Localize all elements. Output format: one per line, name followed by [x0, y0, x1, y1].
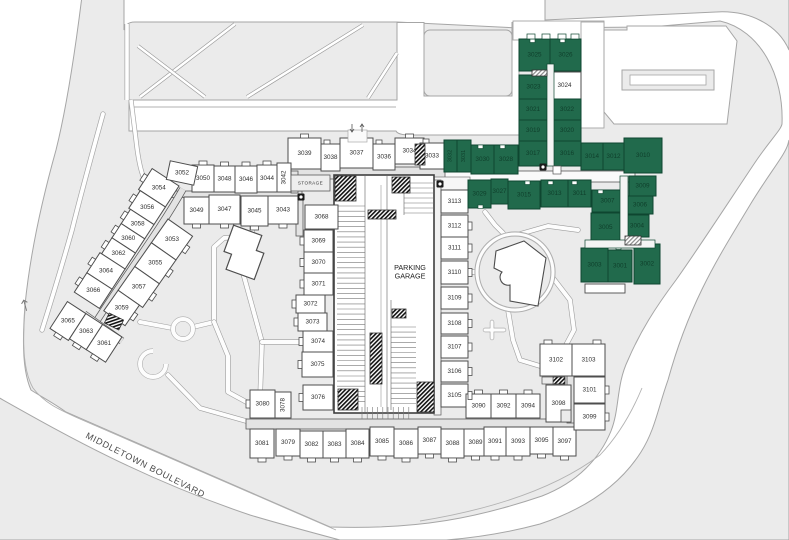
- svg-text:3066: 3066: [86, 287, 101, 294]
- svg-text:3110: 3110: [448, 269, 462, 276]
- svg-text:3109: 3109: [447, 295, 462, 302]
- svg-text:3089: 3089: [468, 439, 483, 446]
- svg-text:3048: 3048: [217, 176, 232, 183]
- svg-text:3056: 3056: [140, 204, 155, 211]
- svg-text:3011: 3011: [573, 190, 587, 197]
- svg-text:3063: 3063: [79, 328, 94, 335]
- svg-text:3070: 3070: [311, 259, 326, 266]
- svg-text:3082: 3082: [304, 441, 319, 448]
- svg-text:3060: 3060: [121, 235, 136, 242]
- svg-text:3030: 3030: [475, 156, 490, 163]
- svg-text:3059: 3059: [115, 305, 130, 312]
- svg-text:3080: 3080: [255, 401, 270, 408]
- svg-text:3108: 3108: [447, 320, 462, 327]
- svg-text:3028: 3028: [499, 156, 514, 163]
- svg-text:3010: 3010: [636, 152, 651, 159]
- svg-text:3007: 3007: [600, 198, 615, 205]
- svg-text:3052: 3052: [175, 170, 190, 177]
- svg-text:3025: 3025: [527, 52, 542, 59]
- svg-text:3095: 3095: [534, 437, 549, 444]
- svg-text:3111: 3111: [448, 245, 462, 252]
- svg-text:3055: 3055: [148, 260, 163, 267]
- svg-text:3074: 3074: [311, 338, 326, 345]
- svg-text:3097: 3097: [557, 438, 572, 445]
- svg-text:3101: 3101: [582, 387, 597, 394]
- svg-text:3049: 3049: [189, 207, 204, 214]
- svg-text:3023: 3023: [526, 84, 541, 91]
- svg-text:3092: 3092: [496, 403, 511, 410]
- svg-text:3094: 3094: [521, 403, 536, 410]
- svg-text:3015: 3015: [517, 192, 532, 199]
- svg-text:3031: 3031: [461, 150, 467, 162]
- svg-text:3014: 3014: [585, 153, 600, 160]
- svg-text:3106: 3106: [447, 368, 462, 375]
- svg-text:3071: 3071: [311, 281, 326, 288]
- svg-text:3081: 3081: [255, 440, 270, 447]
- svg-text:STORAGE: STORAGE: [298, 181, 323, 186]
- svg-text:3107: 3107: [447, 344, 462, 351]
- svg-text:3021: 3021: [526, 106, 541, 113]
- svg-text:3022: 3022: [560, 106, 575, 113]
- svg-text:3073: 3073: [305, 319, 320, 326]
- svg-text:3075: 3075: [310, 361, 325, 368]
- svg-text:3002: 3002: [640, 261, 655, 268]
- svg-text:3088: 3088: [445, 440, 460, 447]
- svg-text:3050: 3050: [196, 175, 211, 182]
- svg-text:3093: 3093: [511, 438, 526, 445]
- svg-text:3027: 3027: [492, 188, 507, 195]
- svg-text:3017: 3017: [526, 150, 541, 157]
- svg-text:3069: 3069: [311, 238, 326, 245]
- svg-text:3026: 3026: [558, 52, 573, 59]
- svg-text:3112: 3112: [448, 223, 462, 230]
- svg-text:3087: 3087: [422, 437, 437, 444]
- svg-text:GARAGE: GARAGE: [395, 272, 426, 281]
- svg-text:3033: 3033: [425, 153, 440, 160]
- svg-text:3016: 3016: [560, 150, 575, 157]
- svg-text:3065: 3065: [61, 318, 76, 325]
- svg-text:3084: 3084: [350, 440, 365, 447]
- svg-text:3037: 3037: [349, 150, 364, 157]
- svg-text:3020: 3020: [560, 127, 575, 134]
- svg-text:3091: 3091: [488, 438, 503, 445]
- svg-text:3001: 3001: [613, 263, 628, 270]
- svg-text:3006: 3006: [633, 202, 648, 209]
- svg-text:3076: 3076: [311, 394, 326, 401]
- svg-text:3047: 3047: [217, 206, 232, 213]
- svg-text:3044: 3044: [260, 175, 275, 182]
- svg-text:3024: 3024: [557, 82, 572, 89]
- svg-text:3083: 3083: [327, 441, 342, 448]
- svg-text:3003: 3003: [587, 262, 602, 269]
- svg-text:3098: 3098: [551, 400, 566, 407]
- svg-text:3036: 3036: [377, 154, 392, 161]
- svg-text:3085: 3085: [375, 438, 390, 445]
- svg-text:3009: 3009: [635, 183, 650, 190]
- svg-text:3046: 3046: [239, 176, 254, 183]
- svg-text:3102: 3102: [549, 357, 564, 364]
- svg-text:3078: 3078: [280, 398, 287, 413]
- svg-text:3005: 3005: [598, 224, 613, 231]
- svg-text:3113: 3113: [448, 198, 462, 205]
- svg-text:3013: 3013: [547, 190, 562, 197]
- svg-text:3004: 3004: [630, 223, 645, 230]
- svg-text:3061: 3061: [97, 340, 112, 347]
- svg-text:3105: 3105: [447, 392, 462, 399]
- svg-text:3045: 3045: [247, 208, 262, 215]
- svg-text:3058: 3058: [131, 221, 146, 228]
- svg-text:3032: 3032: [448, 150, 454, 162]
- svg-text:3012: 3012: [606, 153, 621, 160]
- svg-text:3029: 3029: [472, 191, 487, 198]
- svg-text:3090: 3090: [471, 403, 486, 410]
- svg-text:3053: 3053: [165, 236, 180, 243]
- svg-text:3054: 3054: [152, 184, 167, 191]
- svg-text:3099: 3099: [582, 414, 597, 421]
- svg-text:3043: 3043: [276, 207, 291, 214]
- svg-text:3062: 3062: [111, 250, 126, 257]
- svg-text:3064: 3064: [99, 267, 114, 274]
- svg-text:3086: 3086: [399, 440, 414, 447]
- svg-text:3057: 3057: [132, 284, 147, 291]
- svg-text:3072: 3072: [303, 301, 318, 308]
- svg-text:3079: 3079: [281, 439, 296, 446]
- svg-text:3042: 3042: [281, 170, 288, 185]
- svg-text:3103: 3103: [581, 357, 596, 364]
- svg-text:3068: 3068: [314, 214, 329, 221]
- svg-text:3039: 3039: [297, 150, 312, 157]
- svg-text:3038: 3038: [323, 154, 338, 161]
- svg-text:3019: 3019: [526, 127, 541, 134]
